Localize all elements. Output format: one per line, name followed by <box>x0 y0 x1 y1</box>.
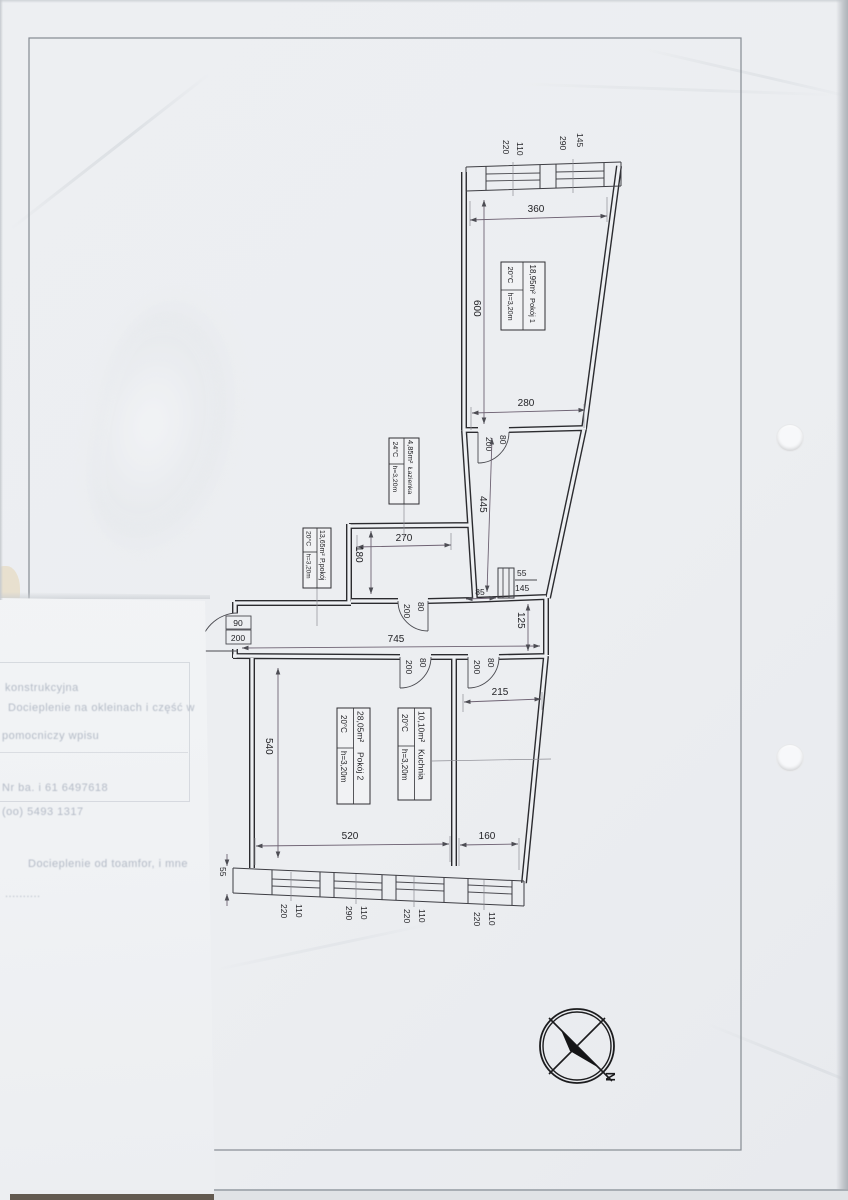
dim-label: 145 <box>515 583 529 593</box>
top-window-dims: 220 110 290 145 <box>501 133 585 156</box>
door-pokoj2: 200 80 <box>400 657 431 688</box>
dim-label: 445 <box>477 496 488 513</box>
punch-hole-bottom <box>776 744 804 772</box>
top-window-band <box>466 159 621 196</box>
paper-edge-right <box>836 0 848 1200</box>
compass-rose: N <box>540 1009 618 1083</box>
room-height: h=3,20m <box>391 466 398 493</box>
room-temp: 20°C <box>400 714 409 732</box>
shaft: 55 145 <box>498 568 537 598</box>
room-label-pokoj1: 18,95m² Pokój 1 20°C h=3,20m <box>501 262 545 330</box>
door-kuchnia: 200 80 <box>468 657 499 688</box>
room-name: Pokój 2 <box>356 752 366 781</box>
dim-label: 80 <box>486 658 496 668</box>
room-height: h=3,20m <box>400 749 409 781</box>
paper-edge-top <box>0 0 848 3</box>
room-height: h=3,20m <box>506 293 515 321</box>
underlay-fragment: .......... <box>5 888 41 900</box>
paper-edge-bottom <box>214 1189 848 1200</box>
room-temp: 20°C <box>339 715 348 733</box>
room-area: 18,95m² <box>528 265 537 295</box>
dim-label: 200 <box>472 660 482 674</box>
dim-label: 200 <box>484 437 494 451</box>
punch-hole-top <box>776 424 804 452</box>
dim-label: 200 <box>231 633 245 643</box>
room-area: 13,65m² <box>318 530 325 556</box>
north-label: N <box>603 1072 618 1081</box>
dim-label: 215 <box>492 687 509 698</box>
bottom-window-band <box>233 868 524 910</box>
paper-edge-left <box>0 0 3 600</box>
dim-label: 160 <box>479 831 496 842</box>
dim-label: 55 <box>517 568 527 578</box>
room-name: Pokój 1 <box>528 298 537 323</box>
dim-label: 600 <box>471 300 482 317</box>
door-lazienka: 200 80 <box>398 601 428 631</box>
room-area: 10,10m² <box>417 711 427 742</box>
dim-label: 180 <box>353 546 364 563</box>
underlay-fragment: (oo) 5493 1317 <box>2 806 84 818</box>
room-label-kuchnia: 10,10m² Kuchnia 20°C h=3,20m <box>398 708 431 800</box>
underlay-fragment: Docieplenie od toamfor, i mne <box>28 858 188 870</box>
dim-label: 220 <box>472 912 482 926</box>
underlay-fragment: Docieplenie na okleinach i część w <box>8 702 195 714</box>
room-height: h=3,20m <box>339 751 348 783</box>
scanned-page: 220 110 290 145 220 110 290 110 220 110 … <box>0 0 848 1200</box>
dim-label: 540 <box>263 738 274 755</box>
room-temp: 20°C <box>506 267 515 284</box>
room-label-pokoj2: 28,05m² Pokój 2 20°C h=3,20m <box>337 708 370 804</box>
dim-label: 220 <box>279 904 289 918</box>
room-temp: 24°C <box>391 442 399 458</box>
scanner-edge-strip <box>10 1194 214 1200</box>
underlay-fragment: pomocniczy wpisu <box>2 730 99 742</box>
dim-label: 125 <box>515 612 526 629</box>
dim-label: 55 <box>218 867 228 877</box>
room-temp: 20°C <box>305 531 313 546</box>
dim-label: 80 <box>416 602 426 612</box>
dim-label: 290 <box>344 906 354 920</box>
room-name: Łazienka <box>406 467 413 494</box>
room-label-lazienka: 4,85m² Łazienka 24°C h=3,20m <box>389 438 419 504</box>
bottom-window-dims: 220 110 290 110 220 110 220 110 <box>279 904 497 926</box>
door-pokoj1: 200 80 <box>478 432 509 463</box>
dim-label: 520 <box>342 831 359 842</box>
room-area: 28,05m² <box>356 711 366 742</box>
room-name: Kuchnia <box>417 749 427 780</box>
dim-label: 90 <box>233 618 243 628</box>
dim-label: 110 <box>417 909 427 923</box>
dim-label: 360 <box>528 204 545 215</box>
dim-label: 110 <box>359 906 369 920</box>
room-name: P.pokój <box>318 558 325 581</box>
dim-label: 200 <box>404 660 414 674</box>
dim-label: 85 <box>475 587 485 597</box>
dim-label: 200 <box>402 604 412 618</box>
dim-label: 110 <box>515 142 525 156</box>
underlay-fragment: Nr ba. i 61 6497618 <box>2 782 108 794</box>
dim-label: 110 <box>487 912 497 926</box>
room-area: 4,85m² <box>406 440 415 464</box>
entry-door: 90 200 <box>200 613 251 651</box>
dim-label: 80 <box>498 435 508 445</box>
dim-label: 290 <box>558 136 568 150</box>
dim-label: 745 <box>388 634 405 645</box>
underlay-fragment: konstrukcyjna <box>5 682 79 694</box>
dim-label: 220 <box>402 909 412 923</box>
dim-label: 280 <box>518 398 535 409</box>
underlay-table-line <box>0 752 188 753</box>
dim-label: 220 <box>501 140 511 154</box>
dim-label: 80 <box>418 658 428 668</box>
dim-label: 145 <box>575 133 585 147</box>
room-height: h=3,20m <box>305 554 312 579</box>
room-label-ppokoj: 13,65m² P.pokój 20°C h=3,20m <box>303 528 331 588</box>
dim-label: 110 <box>294 904 304 918</box>
